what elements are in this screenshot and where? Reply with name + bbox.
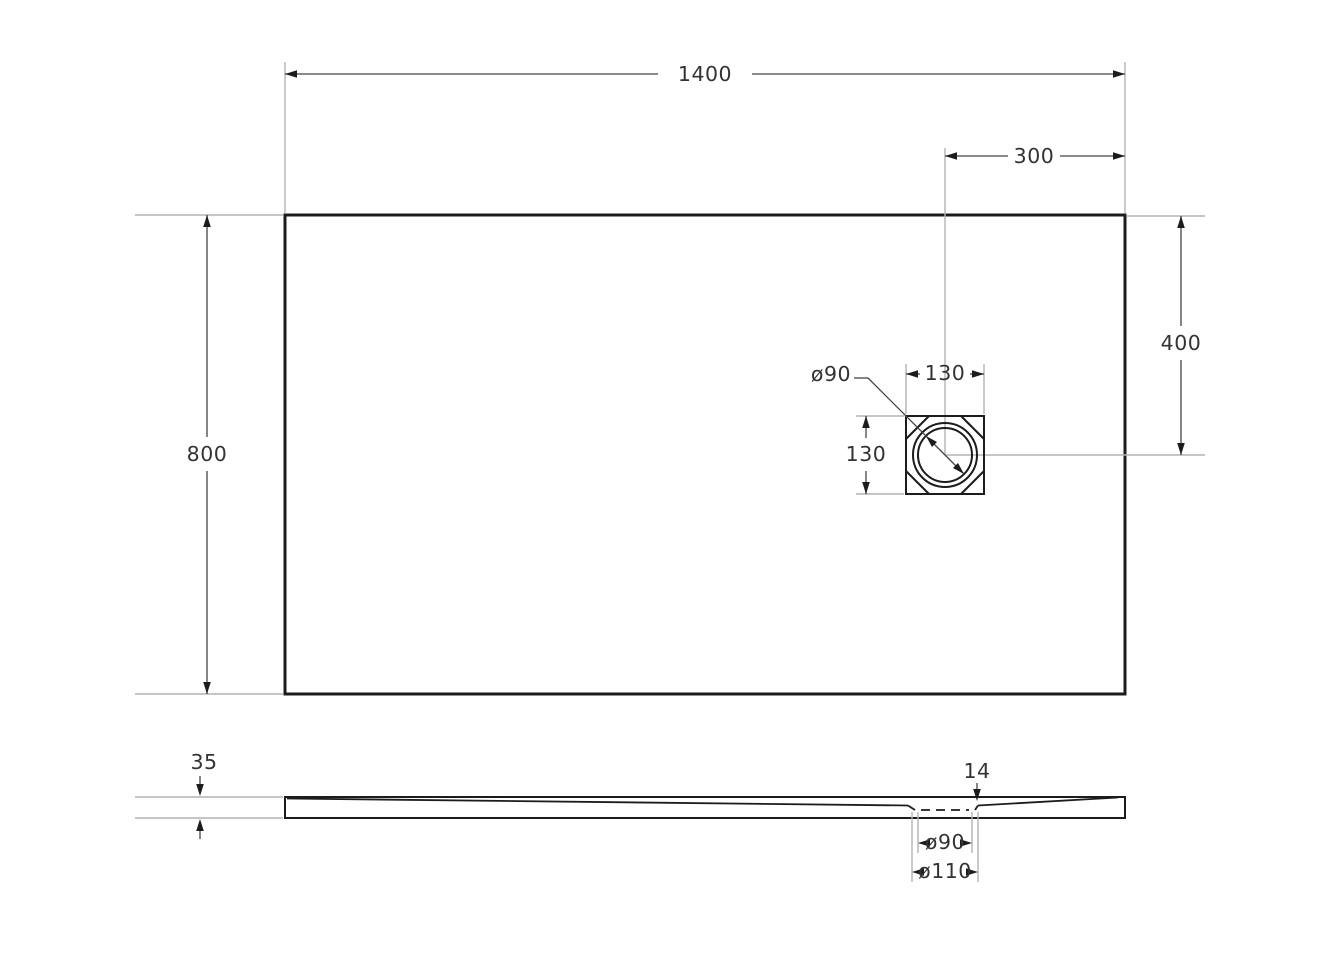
arrowhead-left <box>945 152 957 160</box>
dim-drain-offset-right-label: 300 <box>1014 144 1055 168</box>
dim-overall-depth: 800 <box>135 215 283 694</box>
arrowhead-down <box>203 682 211 694</box>
floor-slope-left <box>287 799 908 806</box>
technical-drawing-canvas: 1400 300 400 800 <box>0 0 1320 960</box>
dim-drain-hole-diameter-label: ø90 <box>925 830 965 854</box>
dim-drain-box-width-label: 130 <box>925 361 966 385</box>
arrowhead-right <box>1113 70 1125 78</box>
recess-lip-right <box>975 806 978 811</box>
dim-overall-width-label: 1400 <box>678 62 732 86</box>
technical-drawing-page: 1400 300 400 800 <box>0 0 1320 960</box>
dim-drain-recess-diameter-label: ø110 <box>918 859 972 883</box>
arrowhead-left <box>285 70 297 78</box>
arrowhead-down <box>973 789 981 801</box>
arrowhead-up <box>196 819 204 831</box>
dim-drain-offset-top-label: 400 <box>1161 331 1202 355</box>
floor-slope-right <box>978 798 1118 806</box>
dim-overall-depth-label: 800 <box>187 442 228 466</box>
dim-edge-thickness-label: 35 <box>190 750 217 774</box>
top-view: 1400 300 400 800 <box>135 62 1205 694</box>
dim-drain-box-height: 130 <box>846 416 904 494</box>
arrowhead-down <box>1177 443 1185 455</box>
dim-drain-depth: 14 <box>963 759 990 801</box>
dim-overall-width: 1400 <box>285 62 1125 213</box>
arrowhead-down <box>862 482 870 494</box>
arrowhead-down <box>196 784 204 796</box>
dim-drain-offset-right: 300 <box>945 144 1125 168</box>
dim-drain-diameter-label: ø90 <box>811 362 851 386</box>
arrowhead-up <box>862 416 870 428</box>
side-view: 35 14 ø90 ø110 <box>135 750 1125 883</box>
arrowhead-up <box>203 215 211 227</box>
arrowhead-left <box>906 370 918 378</box>
arrowhead-right <box>1113 152 1125 160</box>
recess-lip-left <box>908 806 915 811</box>
arrowhead-right <box>972 370 984 378</box>
dim-drain-depth-label: 14 <box>963 759 990 783</box>
drain-detail <box>906 148 1205 494</box>
dim-drain-box-height-label: 130 <box>846 442 887 466</box>
dim-drain-offset-top: 400 <box>1127 216 1205 455</box>
dim-edge-thickness: 35 <box>135 750 283 839</box>
arrowhead-up <box>1177 216 1185 228</box>
